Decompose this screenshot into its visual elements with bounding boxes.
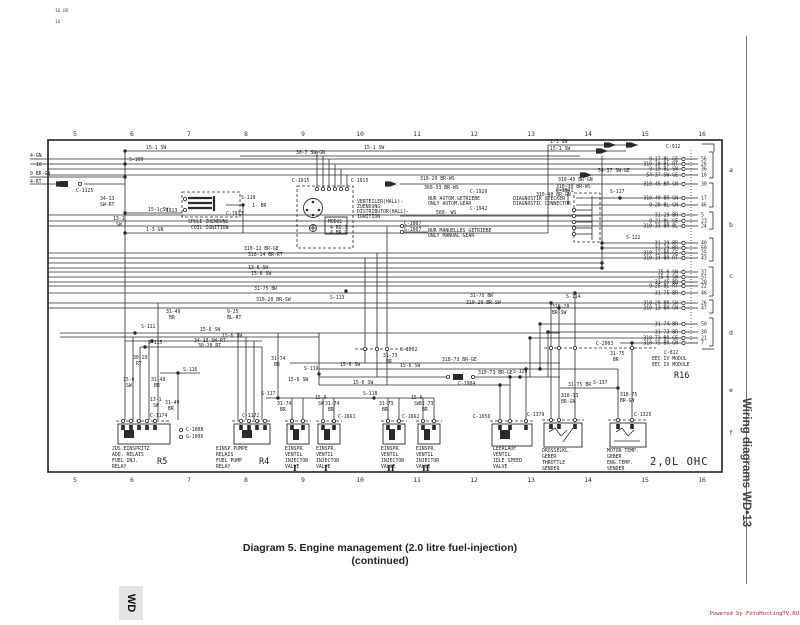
svg-text:IDLE SPEED: IDLE SPEED (493, 458, 522, 464)
terminal-circle (290, 419, 293, 422)
junction-dot (123, 162, 126, 165)
svg-text:9-19 BL-SW: 9-19 BL-SW (649, 167, 678, 173)
svg-text:14: 14 (584, 476, 592, 484)
terminal-circle (446, 375, 449, 378)
terminal-circle (557, 346, 560, 349)
terminal-circle (630, 346, 633, 349)
terminal-circle (239, 419, 242, 422)
svg-text:EINSPR.: EINSPR. (316, 446, 336, 452)
svg-text:C-1915: C-1915 (351, 178, 368, 184)
svg-text:ADD. RELAIS: ADD. RELAIS (112, 452, 144, 458)
svg-text:31-75: 31-75 (610, 351, 625, 357)
svg-text:COIL IGNITION: COIL IGNITION (191, 225, 229, 231)
wd-tab-label: WD (125, 594, 137, 612)
wiring-diagram: 55667788991010111112121313141415151616ab… (0, 0, 800, 620)
terminal-circle (573, 418, 576, 421)
watermark: Powered by FotoHostingTV.RU (710, 611, 799, 617)
svg-text:54-37 SW-GE: 54-37 SW-GE (598, 168, 630, 174)
svg-text:31-74 BR: 31-74 BR (655, 322, 678, 328)
svg-text:54-37 SW-GE: 54-37 SW-GE (646, 173, 678, 179)
svg-text:310-12 BR-GE: 310-12 BR-GE (244, 246, 279, 252)
svg-text:C-1904: C-1904 (458, 381, 475, 387)
svg-text:SENDER: SENDER (542, 466, 559, 472)
svg-text:10: 10 (356, 130, 364, 138)
svg-text:d: d (729, 329, 733, 337)
svg-text:7: 7 (187, 476, 191, 484)
svg-text:318-75: 318-75 (620, 392, 637, 398)
svg-text:ZUS.EINSPRITZ: ZUS.EINSPRITZ (112, 446, 150, 452)
svg-text:BR-GN: BR-GN (561, 399, 576, 405)
svg-text:BR: BR (382, 407, 388, 413)
junction-dot (344, 289, 347, 292)
svg-text:EINSPR.: EINSPR. (416, 446, 436, 452)
svg-text:BR: BR (422, 407, 428, 413)
svg-text:15-6: 15-6 (123, 377, 135, 383)
svg-text:EINSP.PUMPE: EINSP.PUMPE (216, 446, 248, 452)
terminal-circle (339, 187, 342, 190)
svg-text:9: 9 (301, 476, 305, 484)
svg-text:ONLY MANUAL GEAR: ONLY MANUAL GEAR (428, 233, 474, 239)
svg-text:f: f (729, 429, 733, 437)
terminal-circle (255, 419, 258, 422)
junction-dot (618, 196, 621, 199)
terminal-circle (572, 214, 575, 217)
svg-text:30-20 RT: 30-20 RT (198, 343, 221, 349)
svg-text:S-110: S-110 (241, 195, 256, 201)
svg-text:SW: SW (116, 222, 122, 228)
terminal-circle (524, 419, 527, 422)
svg-text:R16: R16 (674, 371, 689, 381)
svg-text:C-1913: C-1913 (226, 211, 243, 217)
svg-text:16: 16 (698, 476, 706, 484)
svg-text:S-122: S-122 (626, 235, 641, 241)
terminal-circle (397, 419, 400, 422)
svg-text:VENTIL: VENTIL (493, 452, 510, 458)
svg-text:SW: SW (126, 383, 132, 389)
svg-text:II: II (422, 463, 430, 473)
svg-text:C-1174: C-1174 (150, 413, 167, 419)
svg-text:ENG.TEMP.: ENG.TEMP. (607, 460, 633, 466)
svg-text:9-20 BL-GN: 9-20 BL-GN (649, 203, 678, 209)
svg-text:R5: R5 (157, 457, 167, 467)
svg-text:310-45 BR-GN: 310-45 BR-GN (558, 177, 593, 183)
svg-text:BR: BR (169, 315, 175, 321)
terminal-circle (179, 428, 182, 431)
svg-text:VENTIL: VENTIL (381, 452, 398, 458)
svg-text:c: c (729, 272, 733, 280)
svg-text:310-40 BR-GN: 310-40 BR-GN (643, 196, 678, 202)
terminal-circle (549, 346, 552, 349)
svg-text:7: 7 (187, 130, 191, 138)
terminal-circle (616, 418, 619, 421)
svg-text:I: I (293, 463, 297, 473)
svg-text:FUEL PUMP: FUEL PUMP (216, 458, 242, 464)
svg-text:34-13: 34-13 (100, 196, 115, 202)
svg-text:15: 15 (641, 476, 649, 484)
junction-dot (176, 371, 179, 374)
svg-text:8: 8 (244, 476, 248, 484)
svg-text:318-20: 318-20 (552, 304, 569, 310)
svg-text:13-1: 13-1 (113, 216, 125, 222)
svg-text:12: 12 (470, 476, 478, 484)
svg-text:31-74: 31-74 (271, 356, 286, 362)
terminal-circle (421, 419, 424, 422)
svg-text:S-109: S-109 (129, 157, 144, 163)
svg-text:30-20: 30-20 (133, 355, 148, 361)
terminal-circle (183, 208, 186, 211)
junction-dot (616, 386, 619, 389)
svg-text:31-29 BR: 31-29 BR (655, 213, 678, 219)
svg-text:C-1662: C-1662 (402, 414, 419, 420)
svg-text:15: 15 (641, 130, 649, 138)
terminal-circle (321, 187, 324, 190)
svg-text:16: 16 (701, 173, 707, 179)
svg-text:16: 16 (36, 162, 42, 168)
junction-dot (133, 331, 136, 334)
svg-text:31-75 BR: 31-75 BR (655, 291, 678, 297)
svg-text:BR-SW: BR-SW (552, 310, 567, 316)
svg-text:IGNITION: IGNITION (357, 214, 380, 220)
svg-text:6: 6 (130, 130, 134, 138)
svg-text:LEERLAUF: LEERLAUF (493, 446, 516, 452)
component-outline (574, 193, 600, 242)
svg-text:310-20 BR-SW: 310-20 BR-SW (466, 300, 501, 306)
svg-text:310-30 BR-WS: 310-30 BR-WS (556, 184, 591, 190)
svg-text:31-75 BR: 31-75 BR (254, 286, 277, 292)
svg-text:BR: BR (154, 383, 160, 389)
terminal-circle (572, 226, 575, 229)
terminal-circle (508, 419, 511, 422)
svg-text:15-6 SW: 15-6 SW (200, 327, 220, 333)
svg-text:17: 17 (701, 196, 707, 202)
svg-text:13-6 SW: 13-6 SW (248, 265, 268, 271)
svg-text:31-74: 31-74 (325, 401, 340, 407)
svg-text:310-14 BR-RT: 310-14 BR-RT (643, 256, 678, 262)
svg-text:C-1942: C-1942 (470, 206, 487, 212)
svg-text:50: 50 (701, 322, 707, 328)
svg-text:BR-GN: BR-GN (620, 398, 635, 404)
svg-text:16 BR: 16 BR (55, 8, 69, 14)
svg-text:15-6: 15-6 (315, 395, 327, 401)
terminal-circle (375, 347, 378, 350)
svg-text:DIAGNOSTIC CONNECTOR: DIAGNOSTIC CONNECTOR (513, 201, 571, 207)
svg-text:S-115: S-115 (148, 340, 163, 346)
junction-dot (123, 211, 126, 214)
junction-dot (123, 175, 126, 178)
junction-dot (518, 375, 521, 378)
svg-text:310-75 BR-GN: 310-75 BR-GN (643, 341, 678, 347)
svg-text:G-1006: G-1006 (186, 434, 203, 440)
svg-text:31-73: 31-73 (379, 401, 394, 407)
svg-text:C-1913: C-1913 (160, 208, 177, 214)
svg-text:1- BR: 1- BR (252, 203, 267, 209)
terminal-circle (263, 419, 266, 422)
svg-text:11: 11 (413, 130, 421, 138)
terminal-circle (301, 419, 304, 422)
terminal-circle (247, 419, 250, 422)
terminal-circle (315, 187, 318, 190)
terminal-circle (179, 435, 182, 438)
svg-text:C-1915: C-1915 (292, 178, 309, 184)
svg-text:RT: RT (136, 361, 142, 367)
junction-dot (123, 231, 126, 234)
svg-text:13: 13 (527, 476, 535, 484)
svg-text:e: e (729, 386, 733, 394)
svg-text:4-GN: 4-GN (30, 153, 42, 159)
svg-text:EINSPR.: EINSPR. (285, 446, 305, 452)
terminal-circle (78, 182, 81, 185)
svg-text:C-1661: C-1661 (338, 414, 355, 420)
svg-text:43: 43 (701, 256, 707, 262)
junction-dot (600, 261, 603, 264)
terminal-circle (386, 419, 389, 422)
junction-dot (528, 336, 531, 339)
junction-dot (538, 367, 541, 370)
svg-text:1-3 GN: 1-3 GN (550, 139, 567, 145)
terminal-circle (557, 418, 560, 421)
terminal-circle (385, 347, 388, 350)
terminal-circle (129, 419, 132, 422)
svg-text:15-1 SW: 15-1 SW (146, 145, 166, 151)
svg-text:BL-RT: BL-RT (227, 315, 242, 321)
terminal-circle (363, 347, 366, 350)
svg-text:16: 16 (698, 130, 706, 138)
svg-text:47: 47 (701, 306, 707, 312)
svg-text:S-117: S-117 (261, 391, 276, 397)
terminal-circle (630, 418, 633, 421)
svg-text:22: 22 (701, 284, 707, 290)
svg-text:DROSSELKL.: DROSSELKL. (542, 448, 571, 454)
svg-text:C-1125: C-1125 (76, 188, 93, 194)
terminal-circle (333, 187, 336, 190)
svg-text:318-13: 318-13 (561, 393, 578, 399)
svg-text:31-73: 31-73 (419, 401, 434, 407)
svg-text:1-3 GN: 1-3 GN (146, 227, 163, 233)
svg-text:BR: BR (168, 406, 174, 412)
svg-text:SW: SW (318, 401, 324, 407)
svg-text:8: 8 (244, 130, 248, 138)
terminal-circle (549, 418, 552, 421)
svg-text:30-7 SW-GN: 30-7 SW-GN (296, 150, 325, 156)
junction-dot (241, 203, 244, 206)
junction-dot (276, 396, 279, 399)
junction-dot (498, 383, 501, 386)
junction-dot (600, 241, 603, 244)
svg-text:VENTIL: VENTIL (416, 452, 433, 458)
svg-text:310-13 BR-GN: 310-13 BR-GN (643, 306, 678, 312)
svg-text:SW: SW (153, 403, 159, 409)
terminal-circle (145, 419, 148, 422)
svg-text:VENTIL: VENTIL (316, 452, 333, 458)
junction-dot (317, 372, 320, 375)
svg-text:31-75 BR: 31-75 BR (568, 382, 591, 388)
svg-text:SPULE ZUENDUNG: SPULE ZUENDUNG (188, 219, 229, 225)
terminal-circle (432, 419, 435, 422)
connector-arrow-icon (626, 142, 638, 147)
svg-text:46: 46 (701, 203, 707, 209)
svg-text:31-73 BR: 31-73 BR (655, 330, 678, 336)
svg-text:5: 5 (73, 130, 77, 138)
svg-text:0 BR-GN: 0 BR-GN (30, 171, 50, 177)
svg-text:15-6 SW: 15-6 SW (340, 362, 360, 368)
svg-text:360-33 BR-WS: 360-33 BR-WS (424, 185, 459, 191)
svg-text:BR: BR (328, 407, 334, 413)
svg-text:310-33 BR-BL: 310-33 BR-BL (643, 224, 678, 230)
svg-text:C-1920: C-1920 (470, 189, 487, 195)
svg-text:9-25: 9-25 (227, 309, 239, 315)
svg-text:11: 11 (413, 476, 421, 484)
svg-text:VENTIL: VENTIL (285, 452, 302, 458)
svg-text:10: 10 (356, 476, 364, 484)
svg-text:RELAY: RELAY (112, 464, 127, 470)
caption-line-1: Diagram 5. Engine management (2.0 litre … (0, 542, 760, 555)
svg-text:C-3002: C-3002 (400, 347, 417, 353)
svg-text:15-6: 15-6 (411, 395, 423, 401)
svg-text:24: 24 (701, 224, 707, 230)
component-box (610, 423, 646, 447)
svg-text:GEBER: GEBER (607, 454, 622, 460)
svg-text:310-20 BR-WS: 310-20 BR-WS (420, 176, 455, 182)
junction-dot (630, 341, 633, 344)
svg-text:SW-RT: SW-RT (100, 202, 115, 208)
svg-text:MODUL: MODUL (328, 219, 343, 225)
svg-text:4-RT: 4-RT (30, 179, 42, 185)
svg-text:13-1: 13-1 (150, 397, 162, 403)
svg-text:13: 13 (527, 130, 535, 138)
diagram-caption: Diagram 5. Engine management (2.0 litre … (0, 542, 760, 568)
terminal-circle (332, 419, 335, 422)
terminal-circle (573, 346, 576, 349)
svg-text:46: 46 (701, 291, 707, 297)
svg-text:C-1656: C-1656 (473, 414, 490, 420)
page: 55667788991010111112121313141415151616ab… (0, 0, 800, 620)
terminal-circle (572, 220, 575, 223)
svg-text:7: 7 (701, 341, 704, 347)
svg-text:ONLY AUTOM.GEAR: ONLY AUTOM.GEAR (428, 201, 471, 207)
svg-text:2,0L OHC: 2,0L OHC (650, 456, 709, 468)
terminal-circle (471, 375, 474, 378)
svg-text:560- WS: 560- WS (436, 210, 456, 216)
svg-text:6: 6 (130, 476, 134, 484)
svg-text:EEC IV MODULE: EEC IV MODULE (652, 362, 690, 368)
svg-text:4 BR G: 4 BR G (330, 230, 347, 236)
svg-text:5: 5 (701, 213, 704, 219)
svg-text:BR: BR (613, 357, 619, 363)
svg-text:S-113: S-113 (330, 295, 345, 301)
svg-text:EINSPR.: EINSPR. (381, 446, 401, 452)
svg-text:12: 12 (470, 130, 478, 138)
svg-text:15-6 SW: 15-6 SW (288, 377, 308, 383)
terminal-circle (572, 208, 575, 211)
svg-text:31-75 BR: 31-75 BR (470, 293, 493, 299)
terminal-circle (121, 419, 124, 422)
svg-text:S-126: S-126 (513, 369, 528, 375)
connector-arrow-icon (580, 172, 592, 177)
terminal-circle (183, 197, 186, 200)
svg-text:310-14 BR-RT: 310-14 BR-RT (248, 252, 283, 258)
svg-text:36: 36 (701, 167, 707, 173)
svg-text:9-25 BL-RT: 9-25 BL-RT (649, 284, 678, 290)
svg-text:C-1325: C-1325 (634, 412, 651, 418)
wd-section-tab: WD (119, 586, 143, 620)
svg-text:S-118: S-118 (363, 391, 378, 397)
svg-text:VALVE: VALVE (493, 464, 508, 470)
svg-text:15-6 SW: 15-6 SW (251, 271, 271, 277)
junction-dot (143, 345, 146, 348)
svg-text:S-137: S-137 (593, 380, 608, 386)
svg-text:S-117: S-117 (610, 189, 625, 195)
svg-text:31-49: 31-49 (166, 309, 181, 315)
terminal-circle (321, 419, 324, 422)
svg-text:C-812: C-812 (664, 350, 679, 356)
svg-text:a: a (729, 166, 733, 174)
svg-text:I: I (324, 463, 328, 473)
svg-text:BR: BR (386, 359, 392, 365)
terminal-circle (137, 419, 140, 422)
svg-text:SENDER: SENDER (607, 466, 624, 472)
svg-text:30: 30 (701, 330, 707, 336)
svg-text:318-73 BR-GE: 318-73 BR-GE (442, 357, 477, 363)
svg-text:S-119: S-119 (304, 366, 319, 372)
connector-arrow-icon (604, 142, 616, 147)
svg-text:S-111: S-111 (141, 324, 156, 330)
svg-text:310-20 BR-SW: 310-20 BR-SW (256, 297, 291, 303)
svg-text:FUEL INJ.: FUEL INJ. (112, 458, 138, 464)
svg-text:b: b (729, 221, 733, 229)
junction-dot (123, 149, 126, 152)
svg-text:THROTTLE: THROTTLE (542, 460, 565, 466)
svg-text:15-6 SW: 15-6 SW (400, 363, 420, 369)
svg-text:14: 14 (584, 130, 592, 138)
connector-arrow-icon (385, 181, 397, 186)
svg-text:BR: BR (280, 407, 286, 413)
svg-text:R4: R4 (259, 457, 269, 467)
svg-text:C-2003: C-2003 (596, 341, 613, 347)
sidebar-page-label: Wiring diagrams WD•13 (740, 398, 752, 598)
svg-text:MOTOR TEMP.: MOTOR TEMP. (607, 448, 639, 454)
svg-text:31-73: 31-73 (383, 353, 398, 359)
svg-text:15-1 SW: 15-1 SW (364, 145, 384, 151)
svg-text:31-49: 31-49 (165, 400, 180, 406)
connector-arrow-icon (596, 148, 608, 153)
terminal-circle (327, 187, 330, 190)
svg-text:16: 16 (55, 19, 61, 25)
terminal-circle (572, 232, 575, 235)
svg-text:31-74: 31-74 (277, 401, 292, 407)
svg-text:15-6 SW: 15-6 SW (353, 380, 373, 386)
svg-text:RELAY: RELAY (216, 464, 231, 470)
svg-text:S-116: S-116 (183, 367, 198, 373)
terminal-circle (498, 419, 501, 422)
svg-text:S-114: S-114 (566, 294, 581, 300)
svg-text:C-912: C-912 (666, 144, 681, 150)
caption-line-2: (continued) (0, 555, 760, 568)
svg-text:30: 30 (701, 182, 707, 188)
svg-text:C-1379: C-1379 (527, 412, 544, 418)
svg-text:BR: BR (274, 362, 280, 368)
svg-text:EEC IV MODUL: EEC IV MODUL (652, 356, 687, 362)
junction-dot (600, 246, 603, 249)
svg-text:310-73 BR-GE: 310-73 BR-GE (478, 370, 513, 376)
svg-text:5: 5 (73, 476, 77, 484)
svg-text:15-1 SW: 15-1 SW (550, 146, 570, 152)
svg-text:31-48: 31-48 (151, 377, 166, 383)
svg-text:RELAIS: RELAIS (216, 452, 233, 458)
svg-text:310-45 BR-GN: 310-45 BR-GN (643, 182, 678, 188)
svg-text:C-1007: C-1007 (404, 221, 421, 227)
terminal-circle (153, 419, 156, 422)
svg-text:C-1172: C-1172 (242, 413, 259, 419)
